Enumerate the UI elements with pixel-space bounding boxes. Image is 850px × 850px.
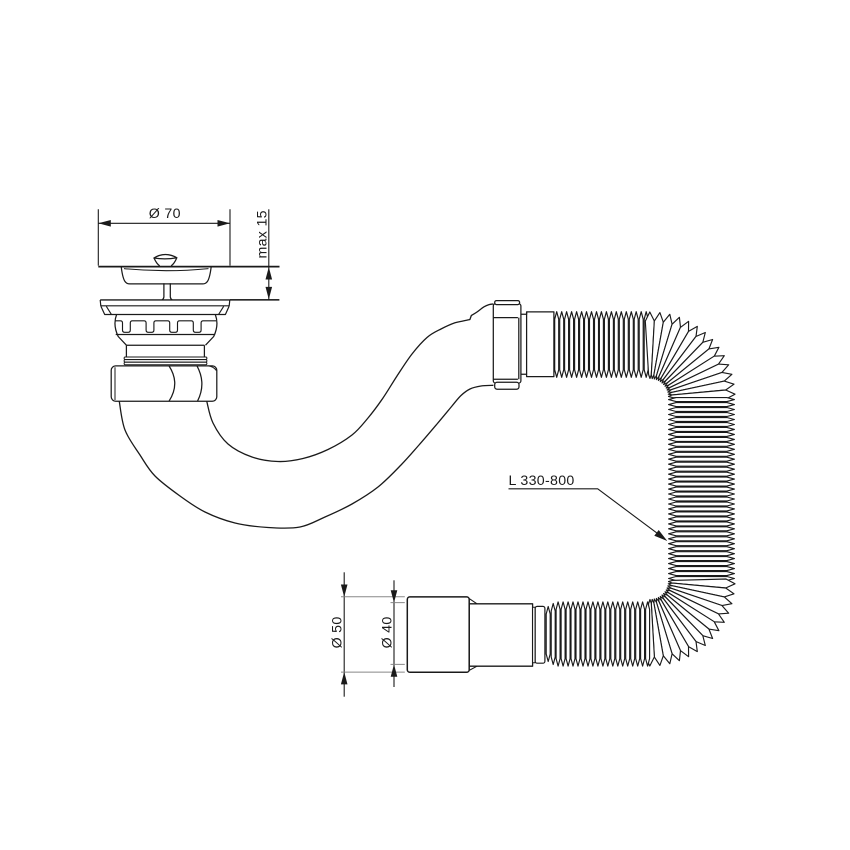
svg-text:Ø 40: Ø 40 xyxy=(380,616,396,648)
svg-text:Ø 50: Ø 50 xyxy=(329,616,345,648)
svg-text:L 330-800: L 330-800 xyxy=(509,473,575,489)
svg-text:Ø 70: Ø 70 xyxy=(149,206,181,222)
svg-text:max 15: max 15 xyxy=(255,210,271,258)
